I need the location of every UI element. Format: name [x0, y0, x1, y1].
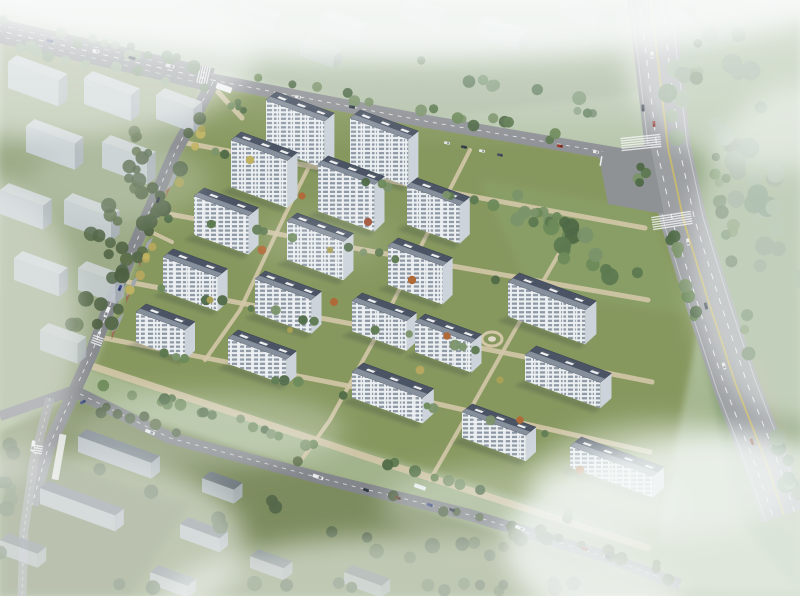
tree	[635, 178, 644, 187]
facade-pier	[425, 326, 427, 357]
tree	[371, 325, 380, 334]
facade-pier	[362, 305, 364, 336]
facade-pier	[398, 250, 400, 289]
tree	[84, 227, 98, 241]
tree	[491, 275, 500, 284]
tree	[326, 526, 337, 537]
tree	[558, 252, 570, 264]
vehicle-windshield	[482, 150, 484, 152]
facade-pier	[442, 199, 444, 238]
facade-pier	[388, 314, 390, 345]
tree	[486, 415, 496, 425]
facade-pier	[328, 168, 330, 216]
tree	[143, 253, 150, 260]
tree	[636, 163, 644, 171]
tree	[589, 248, 603, 262]
tree	[135, 271, 145, 281]
tree	[161, 350, 168, 357]
tree	[470, 195, 479, 204]
tree	[164, 214, 173, 223]
facade-pier	[342, 173, 344, 221]
facade-pier	[401, 390, 403, 416]
tree	[104, 249, 114, 259]
facade-pier	[361, 375, 363, 401]
fog-patch	[30, 140, 210, 220]
facade-pier	[563, 369, 565, 395]
tree	[552, 212, 561, 221]
tree	[105, 316, 119, 330]
facade-pier	[591, 379, 593, 405]
tree	[487, 199, 499, 211]
tree	[120, 253, 133, 266]
facade-pier	[279, 288, 281, 323]
facade-pier	[417, 189, 419, 228]
facade-pier	[212, 275, 214, 310]
facade-pier	[145, 315, 147, 346]
facade-pier	[531, 290, 533, 325]
fog-patch	[65, 392, 345, 468]
facade-pier	[454, 203, 456, 242]
facade-pier	[474, 416, 476, 442]
tree	[577, 227, 593, 243]
facade-pier	[265, 283, 267, 318]
tree	[668, 230, 681, 243]
aerial-rendering	[0, 0, 800, 596]
tree	[424, 402, 431, 409]
facade-pier	[547, 296, 549, 331]
tree	[78, 291, 94, 307]
tree	[113, 304, 124, 315]
facade-pier	[517, 285, 519, 320]
tree	[382, 459, 393, 470]
tree	[471, 346, 480, 355]
facade-pier	[157, 320, 159, 351]
facade-pier	[268, 154, 270, 202]
vehicle-windshield	[500, 154, 502, 156]
facade-pier	[401, 319, 403, 350]
facade-pier	[534, 358, 536, 384]
facade-pier	[239, 342, 241, 368]
haze-veil	[0, 0, 800, 150]
tree-yellow-accent	[246, 156, 254, 164]
facade-pier	[253, 347, 255, 373]
tree	[518, 206, 531, 219]
tree	[562, 218, 579, 235]
facade-pier	[255, 149, 257, 197]
tree	[361, 178, 370, 187]
tree	[600, 264, 612, 276]
tree	[172, 353, 180, 361]
central-plaza	[488, 336, 496, 342]
vehicle-windshield	[596, 151, 598, 153]
tree	[298, 315, 308, 325]
facade-pier	[267, 352, 269, 378]
facade-pier	[489, 422, 491, 448]
tree-red-accent	[330, 298, 338, 306]
tree-yellow-accent	[287, 327, 293, 333]
facade-pier	[424, 259, 426, 298]
tree	[269, 500, 282, 513]
tree	[207, 220, 216, 229]
facade-pier	[204, 200, 206, 239]
tree	[220, 150, 229, 159]
tree-yellow-accent	[496, 376, 503, 383]
facade-pier	[578, 374, 580, 400]
tree	[409, 465, 421, 477]
facade-pier	[180, 328, 182, 359]
facade-pier	[168, 324, 170, 355]
tree-red-accent	[408, 276, 416, 284]
tree	[339, 391, 348, 400]
vehicle-windshield	[687, 242, 689, 244]
facade-pier	[414, 395, 416, 421]
facade-pier	[306, 298, 308, 333]
facade-pier	[387, 385, 389, 411]
tree	[98, 380, 110, 392]
tree	[279, 375, 290, 386]
facade-pier	[411, 254, 413, 293]
tree-red-accent	[443, 332, 451, 340]
tree	[450, 340, 461, 351]
facade-pier	[375, 309, 377, 340]
tree	[217, 295, 227, 305]
facade-pier	[548, 363, 550, 389]
tree	[406, 330, 413, 337]
residential-development-scene	[0, 0, 800, 596]
tree	[442, 191, 450, 199]
facade-pier	[373, 380, 375, 406]
tree	[541, 430, 548, 437]
tree	[528, 217, 538, 227]
tree	[378, 179, 387, 188]
tree	[673, 249, 682, 258]
tree	[248, 305, 255, 312]
facade-pier	[173, 261, 175, 296]
tree-yellow-accent	[416, 366, 425, 375]
facade-pier	[243, 214, 245, 253]
tree	[530, 208, 539, 217]
facade-pier	[520, 433, 522, 459]
tree	[512, 190, 523, 201]
tree	[92, 319, 103, 330]
tree	[116, 242, 129, 255]
facade-pier	[241, 144, 243, 192]
facade-pier	[429, 194, 431, 233]
tree	[679, 279, 692, 292]
tree	[132, 251, 144, 263]
facade-pier	[282, 159, 284, 207]
facade-pier	[217, 204, 219, 243]
tree	[94, 297, 108, 311]
tree-red-accent	[298, 192, 305, 199]
tree	[125, 285, 134, 294]
facade-pier	[562, 302, 564, 337]
facade-pier	[230, 209, 232, 248]
facade-pier	[437, 264, 439, 303]
tree	[180, 354, 189, 363]
tree	[391, 255, 399, 263]
facade-pier	[504, 427, 506, 453]
facade-pier	[439, 331, 441, 362]
facade-pier	[199, 270, 201, 305]
tree	[632, 267, 643, 278]
tree	[148, 243, 156, 251]
tree	[105, 237, 116, 248]
tree	[310, 317, 319, 326]
fog-patch	[250, 212, 390, 268]
tree	[554, 237, 571, 254]
facade-pier	[576, 307, 578, 342]
tree	[271, 376, 279, 384]
tree	[114, 268, 129, 283]
tree	[293, 376, 304, 387]
tree	[157, 284, 165, 292]
tree-yellow-accent	[207, 297, 214, 304]
facade-pier	[186, 265, 188, 300]
tree-red-accent	[516, 416, 523, 423]
tree	[271, 305, 281, 315]
fog-patch	[530, 420, 790, 540]
facade-pier	[292, 293, 294, 328]
